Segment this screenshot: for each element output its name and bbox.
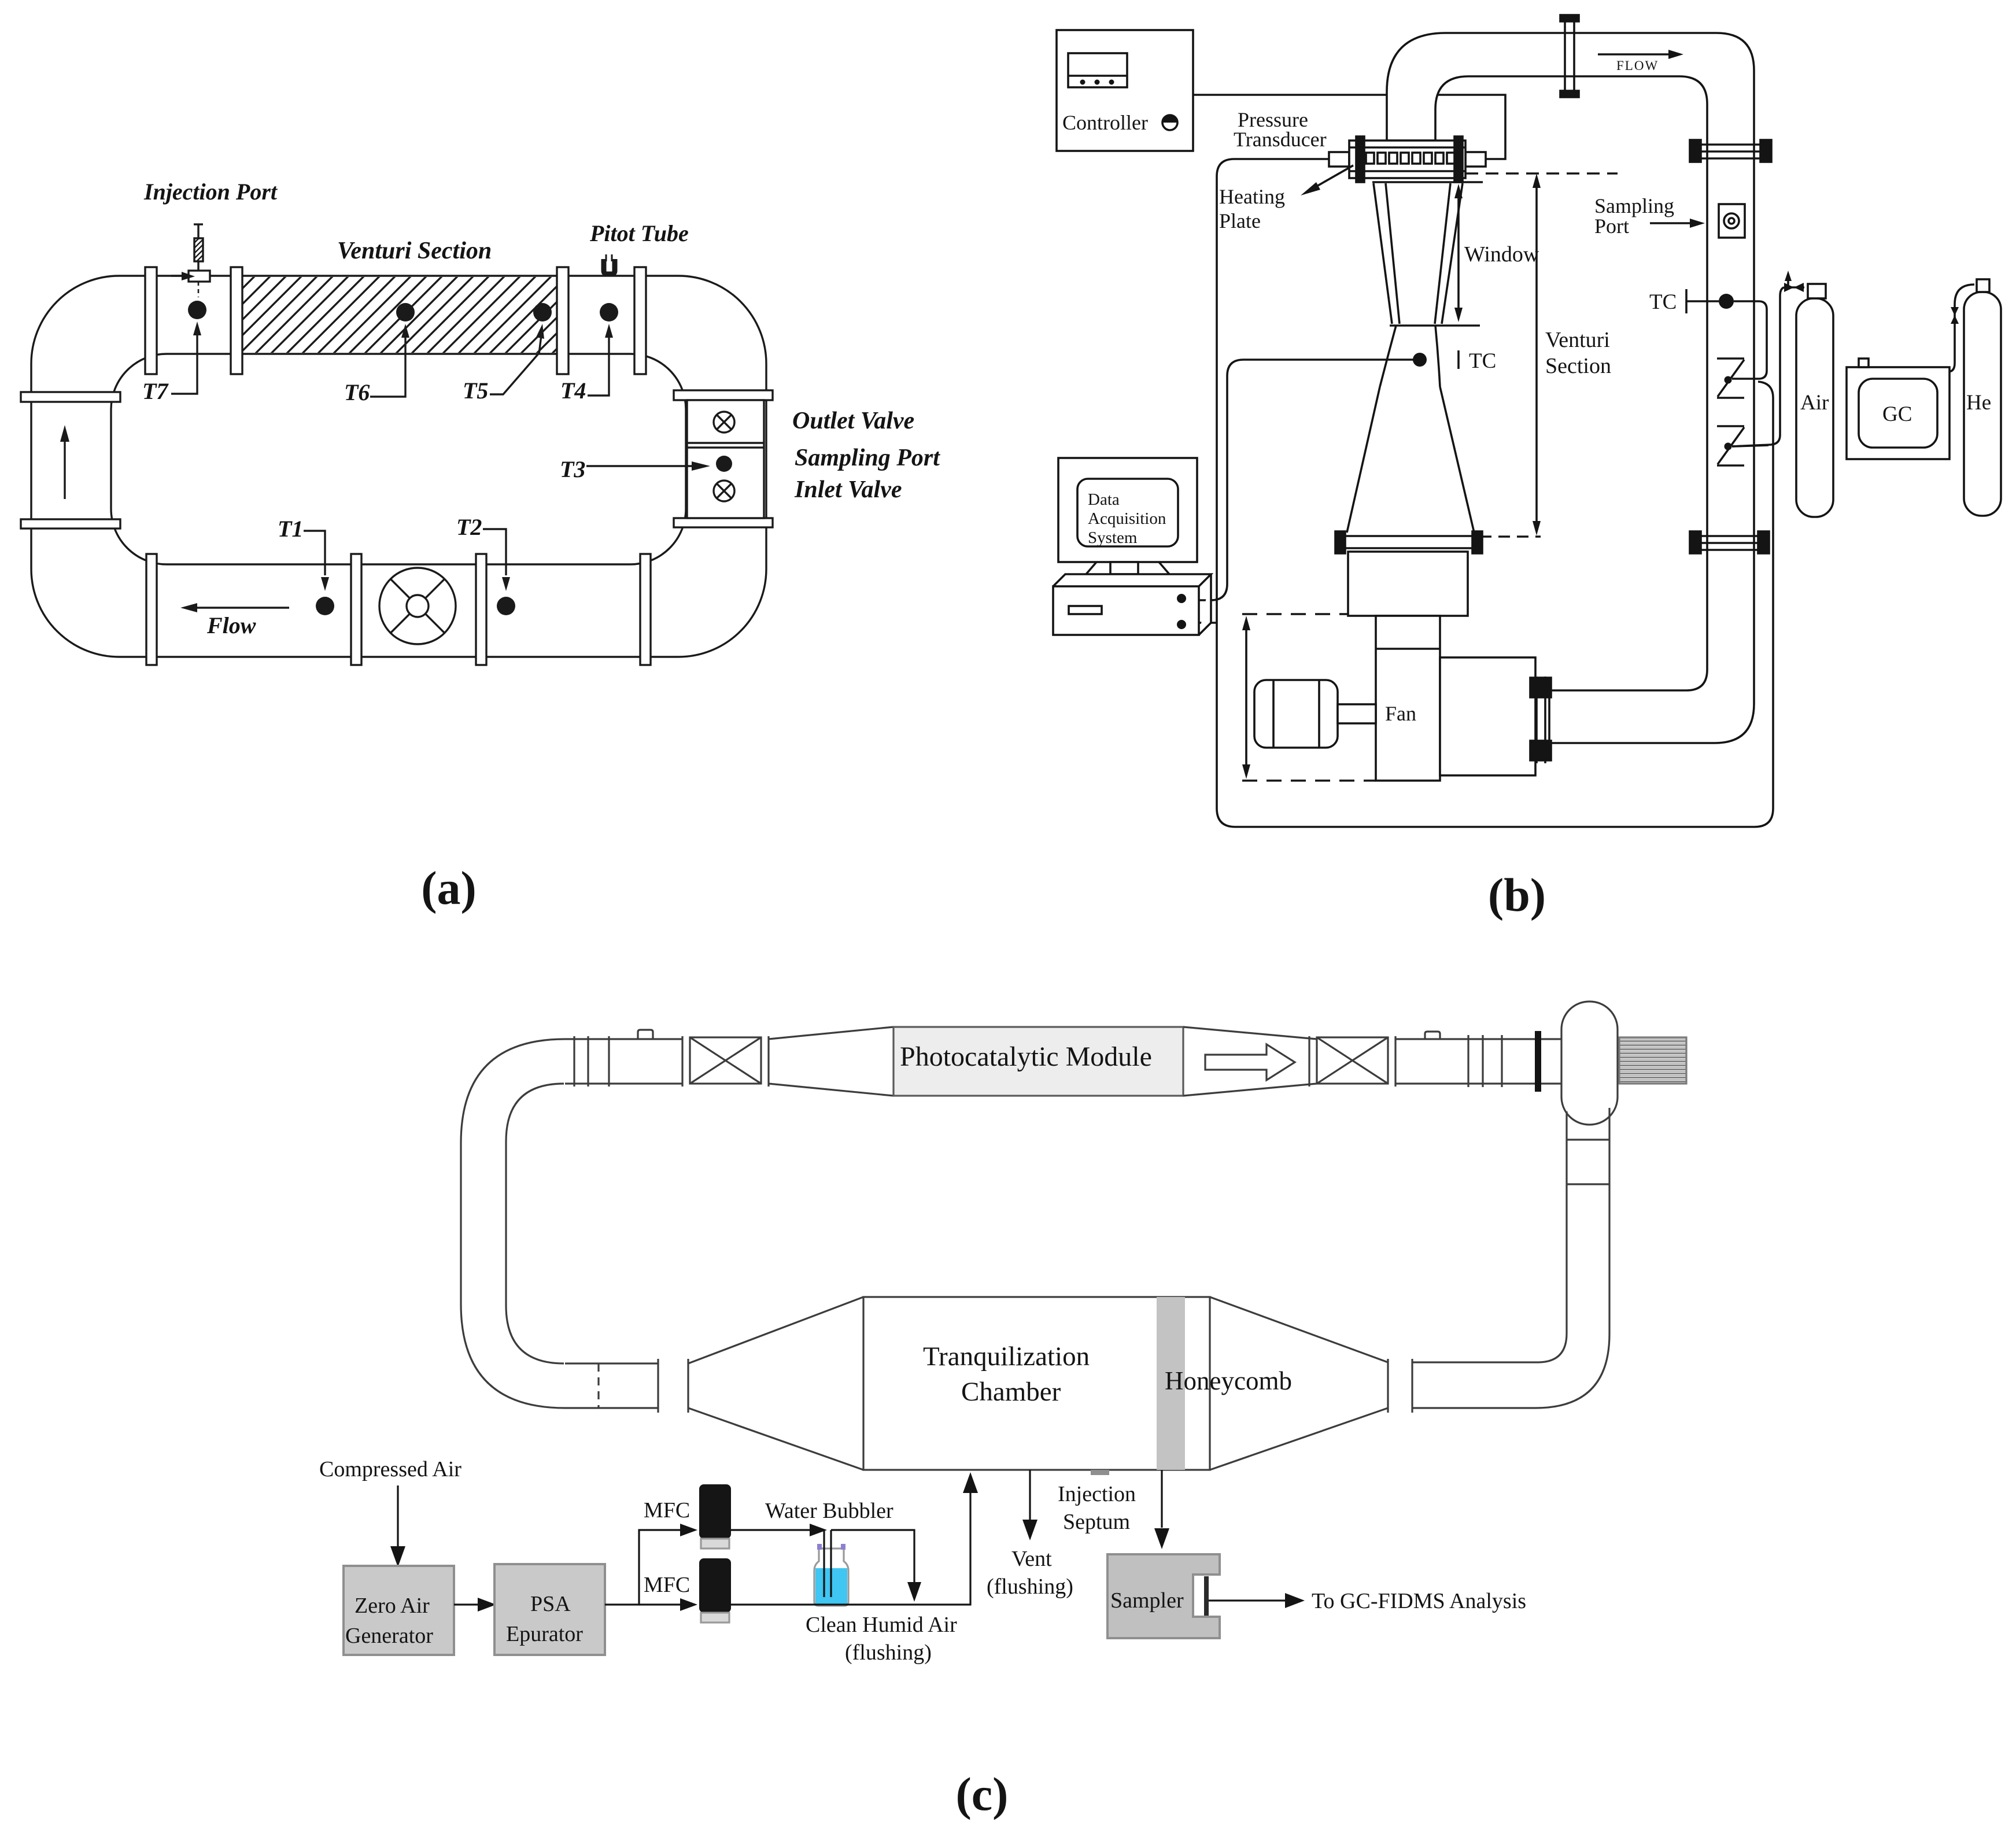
svg-text:T6: T6: [344, 379, 370, 405]
svg-text:Sampling Port: Sampling Port: [795, 445, 940, 471]
svg-text:System: System: [1088, 529, 1138, 547]
svg-text:Septum: Septum: [1063, 1510, 1130, 1534]
svg-text:Port: Port: [1594, 215, 1629, 238]
svg-text:Generator: Generator: [345, 1624, 433, 1648]
svg-text:TC: TC: [1469, 349, 1496, 373]
svg-text:He: He: [1966, 391, 1991, 415]
svg-text:Chamber: Chamber: [961, 1377, 1061, 1407]
svg-text:Sampler: Sampler: [1110, 1588, 1184, 1613]
svg-text:FLOW: FLOW: [1616, 58, 1659, 73]
svg-text:MFC: MFC: [644, 1573, 690, 1597]
svg-text:Air: Air: [1800, 391, 1829, 415]
svg-text:Plate: Plate: [1219, 209, 1261, 232]
svg-text:Injection Port: Injection Port: [143, 179, 278, 205]
svg-text:Fan: Fan: [1385, 702, 1416, 725]
svg-text:T3: T3: [560, 456, 585, 482]
svg-text:T1: T1: [278, 516, 303, 542]
svg-text:Photocatalytic Module: Photocatalytic Module: [900, 1041, 1152, 1072]
svg-text:Venturi: Venturi: [1545, 328, 1610, 352]
svg-text:Sampling: Sampling: [1594, 194, 1674, 217]
svg-text:Epurator: Epurator: [506, 1622, 583, 1646]
svg-text:Controller: Controller: [1062, 111, 1148, 134]
svg-text:Compressed Air: Compressed Air: [319, 1457, 461, 1481]
svg-text:Transducer: Transducer: [1234, 128, 1327, 151]
svg-text:Pitot Tube: Pitot Tube: [589, 220, 689, 246]
svg-text:(b): (b): [1488, 869, 1546, 921]
svg-text:Window: Window: [1464, 242, 1539, 267]
svg-text:Injection: Injection: [1058, 1482, 1136, 1506]
svg-text:MFC: MFC: [644, 1498, 690, 1522]
svg-text:T2: T2: [456, 514, 482, 540]
svg-text:T4: T4: [560, 378, 586, 404]
svg-text:Zero Air: Zero Air: [355, 1594, 430, 1618]
svg-text:Inlet Valve: Inlet Valve: [794, 476, 902, 503]
svg-text:Acquisition: Acquisition: [1088, 509, 1166, 528]
svg-text:Clean Humid Air: Clean Humid Air: [806, 1613, 957, 1637]
svg-text:(a): (a): [421, 862, 477, 914]
svg-text:Venturi Section: Venturi Section: [337, 238, 492, 264]
svg-text:Tranquilization: Tranquilization: [923, 1342, 1090, 1372]
svg-text:Outlet Valve: Outlet Valve: [792, 408, 914, 434]
svg-text:To GC-FIDMS Analysis: To GC-FIDMS Analysis: [1312, 1589, 1526, 1613]
svg-text:(flushing): (flushing): [845, 1640, 932, 1665]
svg-text:Heating: Heating: [1219, 185, 1285, 208]
svg-text:(flushing): (flushing): [987, 1575, 1073, 1599]
svg-text:Data: Data: [1088, 490, 1120, 509]
svg-text:(c): (c): [955, 1768, 1008, 1820]
svg-text:PSA: PSA: [530, 1592, 571, 1616]
svg-text:Flow: Flow: [206, 612, 256, 638]
svg-text:Water Bubbler: Water Bubbler: [765, 1499, 893, 1523]
svg-text:Section: Section: [1545, 354, 1611, 378]
svg-text:TC: TC: [1649, 290, 1677, 314]
svg-text:Honeycomb: Honeycomb: [1165, 1366, 1292, 1395]
svg-text:GC: GC: [1882, 402, 1912, 426]
svg-text:Vent: Vent: [1011, 1547, 1052, 1571]
svg-text:T7: T7: [142, 378, 169, 404]
svg-text:T5: T5: [463, 378, 488, 404]
